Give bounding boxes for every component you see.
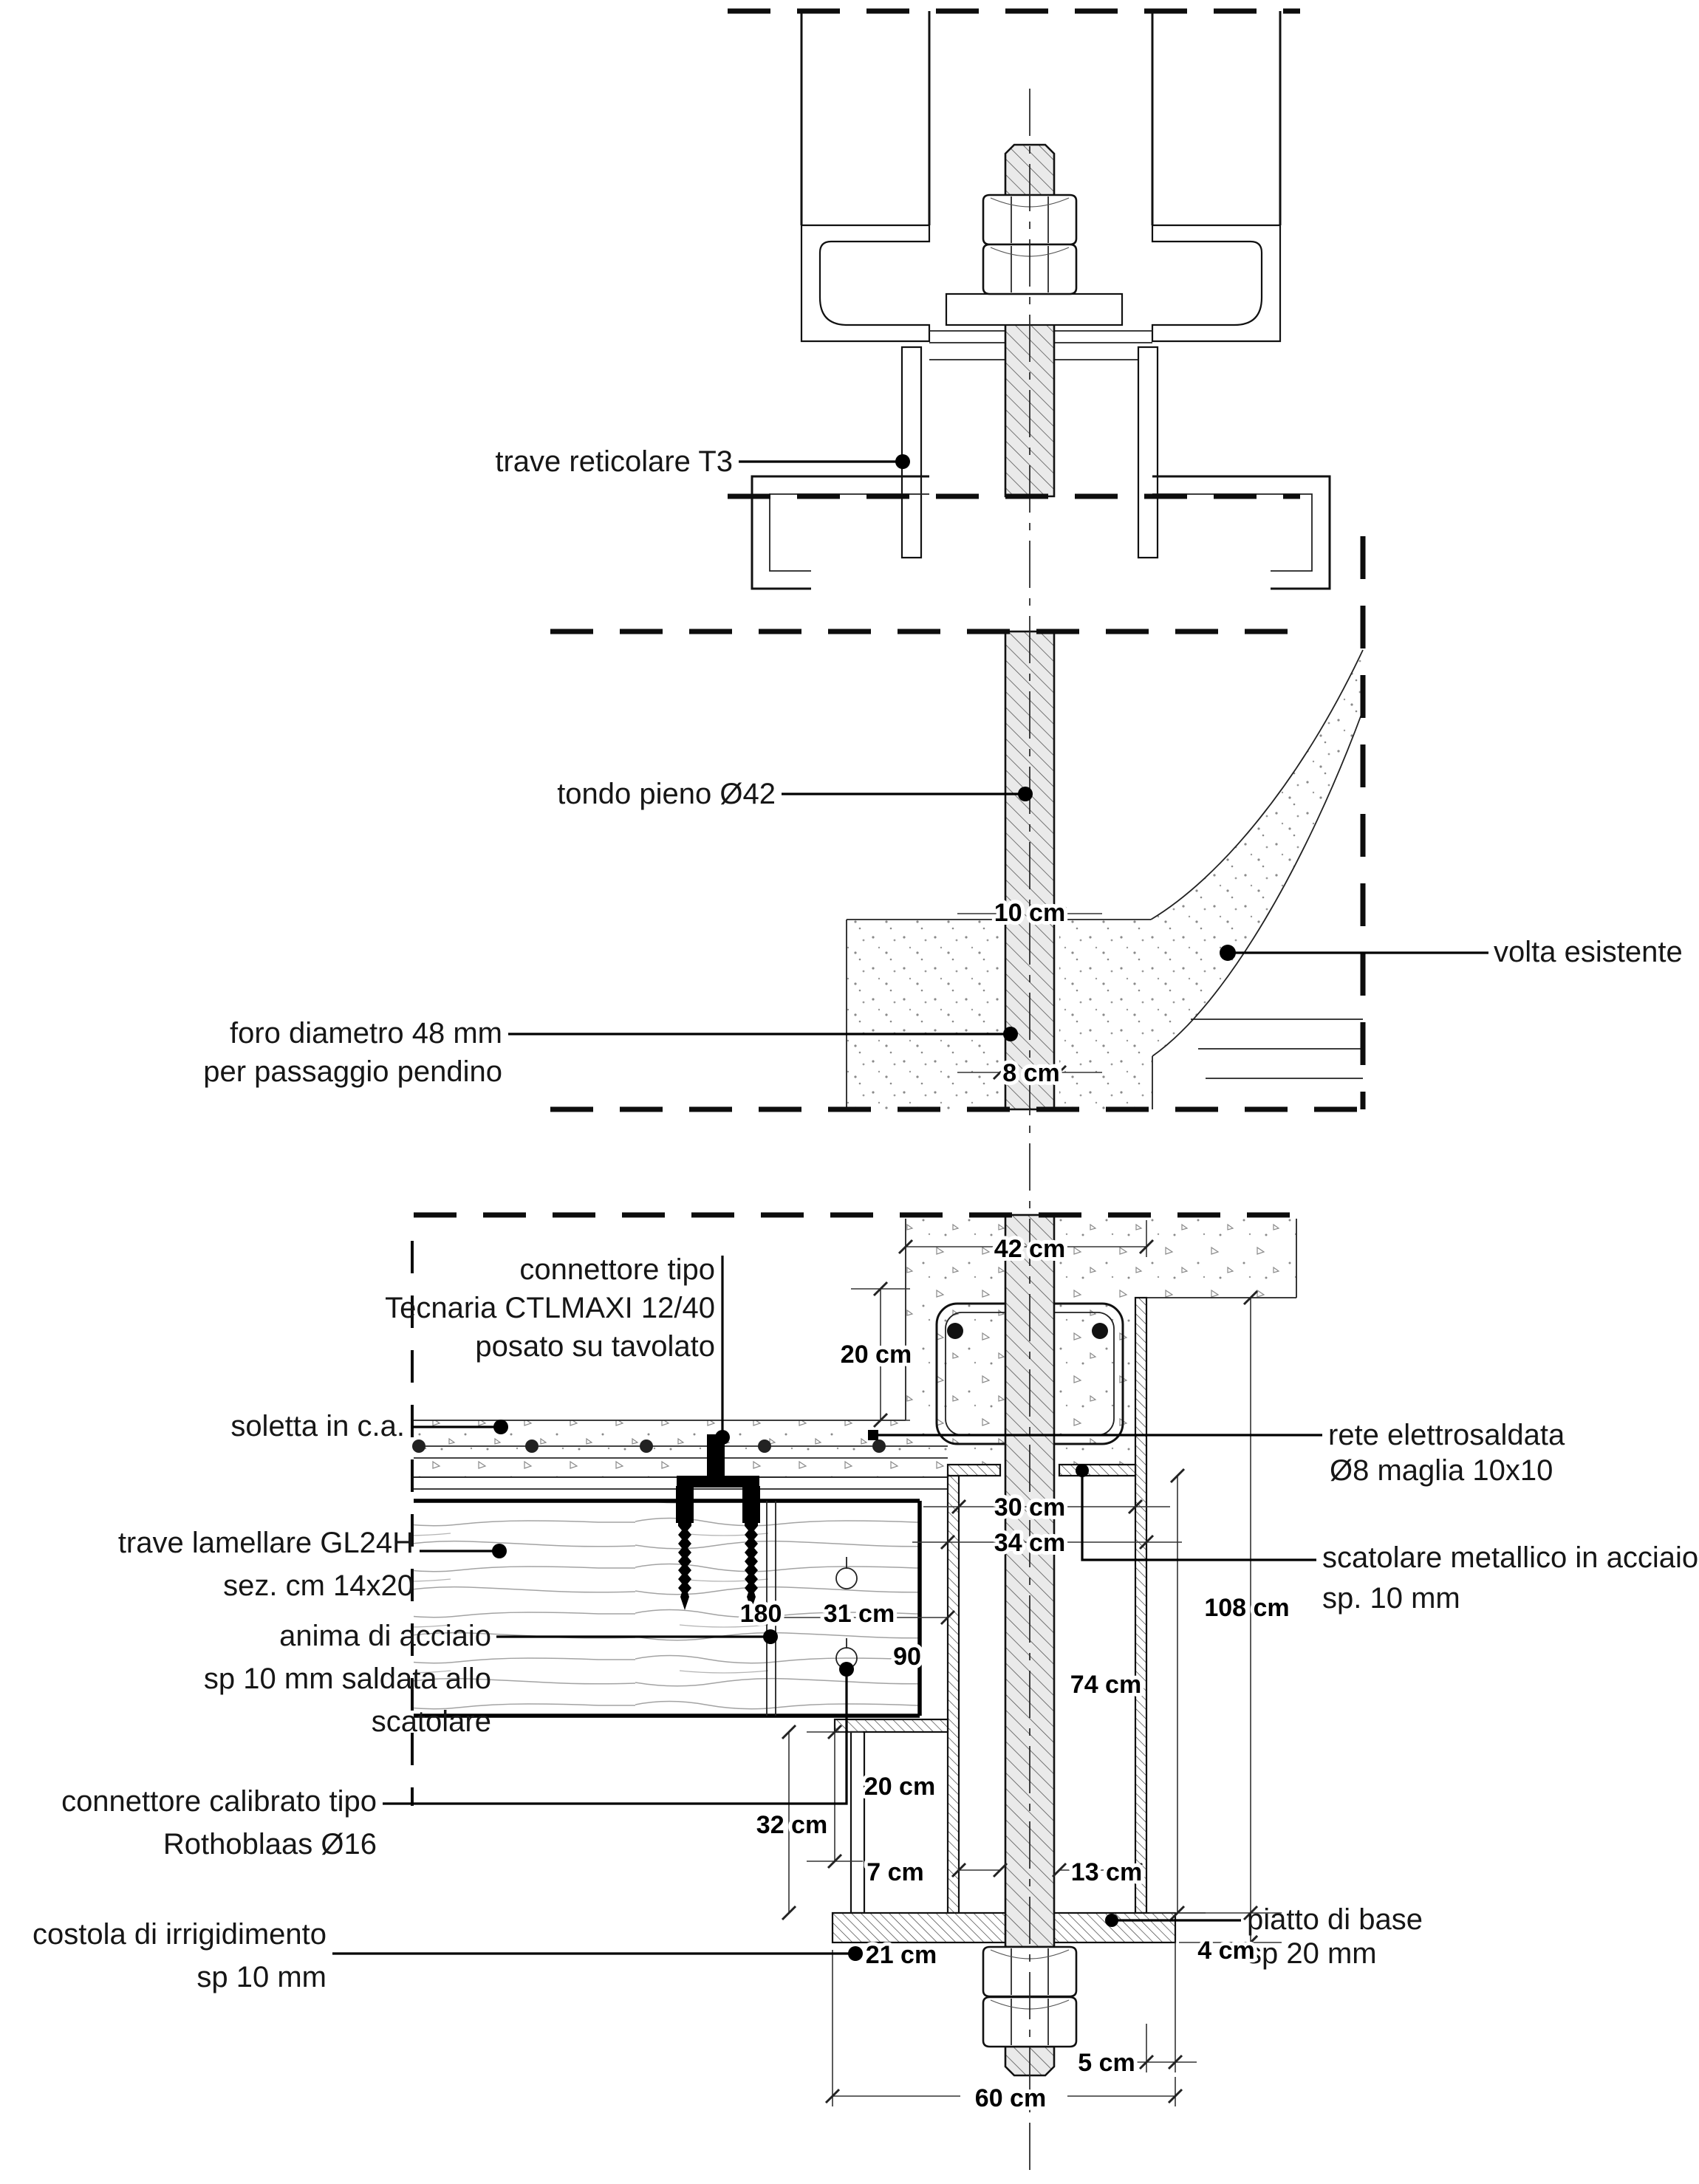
channel-left: [801, 225, 929, 341]
dim-20cm-lower: 20 cm: [864, 1773, 935, 1801]
label-anima-1: anima di acciaio: [279, 1620, 491, 1652]
dim-5cm: 5 cm: [1078, 2049, 1135, 2077]
dim-42cm: 42 cm: [994, 1235, 1065, 1263]
channel-right: [1152, 225, 1280, 341]
label-connettore-calibrato-2: Rothoblaas Ø16: [163, 1828, 377, 1860]
label-anima-2: sp 10 mm saldata allo: [204, 1663, 491, 1695]
dim-32cm: 32 cm: [756, 1811, 827, 1839]
box-top-plate-right: [1059, 1465, 1135, 1476]
label-trave-reticolare: trave reticolare T3: [495, 445, 733, 478]
dim-7cm: 7 cm: [866, 1858, 924, 1886]
label-connettore-calibrato-1: connettore calibrato tipo: [61, 1785, 377, 1818]
dim-13cm: 13 cm: [1071, 1858, 1142, 1886]
dim-34cm: 34 cm: [994, 1529, 1065, 1557]
dim-74cm: 74 cm: [1070, 1671, 1141, 1699]
dim-20cm-cordolo: 20 cm: [841, 1341, 912, 1369]
gusset-plate-left: [902, 347, 921, 558]
washer-plate: [946, 294, 1122, 325]
label-soletta: soletta in c.a.: [230, 1410, 405, 1442]
label-volta-esistente: volta esistente: [1494, 936, 1683, 968]
label-rete-1: rete elettrosaldata: [1328, 1419, 1565, 1451]
dim-180: 180: [740, 1600, 782, 1628]
box-right-wall: [1135, 1298, 1146, 1913]
label-foro-1: foro diametro 48 mm: [230, 1017, 502, 1050]
label-anima-3: scatolare: [372, 1705, 491, 1738]
label-costola-1: costola di irrigidimento: [33, 1918, 327, 1951]
label-piatto-1: piatto di base: [1247, 1903, 1423, 1936]
label-scatolare-2: sp. 10 mm: [1322, 1582, 1460, 1615]
top-anchor: [946, 195, 1122, 325]
gusset-plate-right: [1138, 347, 1158, 558]
label-foro-2: per passaggio pendino: [203, 1055, 502, 1088]
label-trave-lamellare-1: trave lamellare GL24H: [118, 1527, 414, 1559]
dim-21cm: 21 cm: [866, 1941, 937, 1969]
beam-shelf-plate: [835, 1719, 948, 1732]
dim-31cm: 31 cm: [824, 1600, 895, 1628]
dim-4cm: 4 cm: [1197, 1937, 1255, 1965]
drawing-sheet: trave reticolare T3 tondo pieno Ø42 volt…: [0, 0, 1699, 2184]
label-scatolare-1: scatolare metallico in acciaio: [1322, 1541, 1698, 1574]
existing-vault: [847, 650, 1363, 1109]
label-piatto-2: sp 20 mm: [1247, 1937, 1377, 1970]
label-rete-2: Ø8 maglia 10x10: [1330, 1454, 1553, 1487]
leader-lines: [332, 454, 1488, 1961]
bottom-angle-right: [1152, 476, 1330, 589]
stiffener-rib: [851, 1732, 864, 1913]
dim-90: 90: [893, 1643, 921, 1671]
dim-60cm: 60 cm: [975, 2084, 1046, 2112]
dim-30cm: 30 cm: [994, 1493, 1065, 1521]
label-connettore-2: Tecnaria CTLMAXI 12/40: [385, 1292, 715, 1324]
concrete-cordolo: [906, 1219, 1296, 1465]
label-costola-2: sp 10 mm: [196, 1961, 327, 1993]
label-tondo-pieno: tondo pieno Ø42: [557, 778, 776, 810]
dim-108cm: 108 cm: [1204, 1594, 1289, 1622]
label-connettore-3: posato su tavolato: [475, 1330, 715, 1363]
box-top-plate-left: [948, 1465, 1000, 1476]
label-trave-lamellare-2: sez. cm 14x20: [223, 1569, 414, 1602]
dim-rod-10cm: 10 cm: [994, 899, 1065, 927]
technical-drawing: trave reticolare T3 tondo pieno Ø42 volt…: [0, 0, 1699, 2184]
dim-rod-8cm: 8 cm: [1002, 1059, 1060, 1087]
label-connettore-1: connettore tipo: [519, 1253, 715, 1286]
base-plate: [833, 1913, 1175, 1942]
